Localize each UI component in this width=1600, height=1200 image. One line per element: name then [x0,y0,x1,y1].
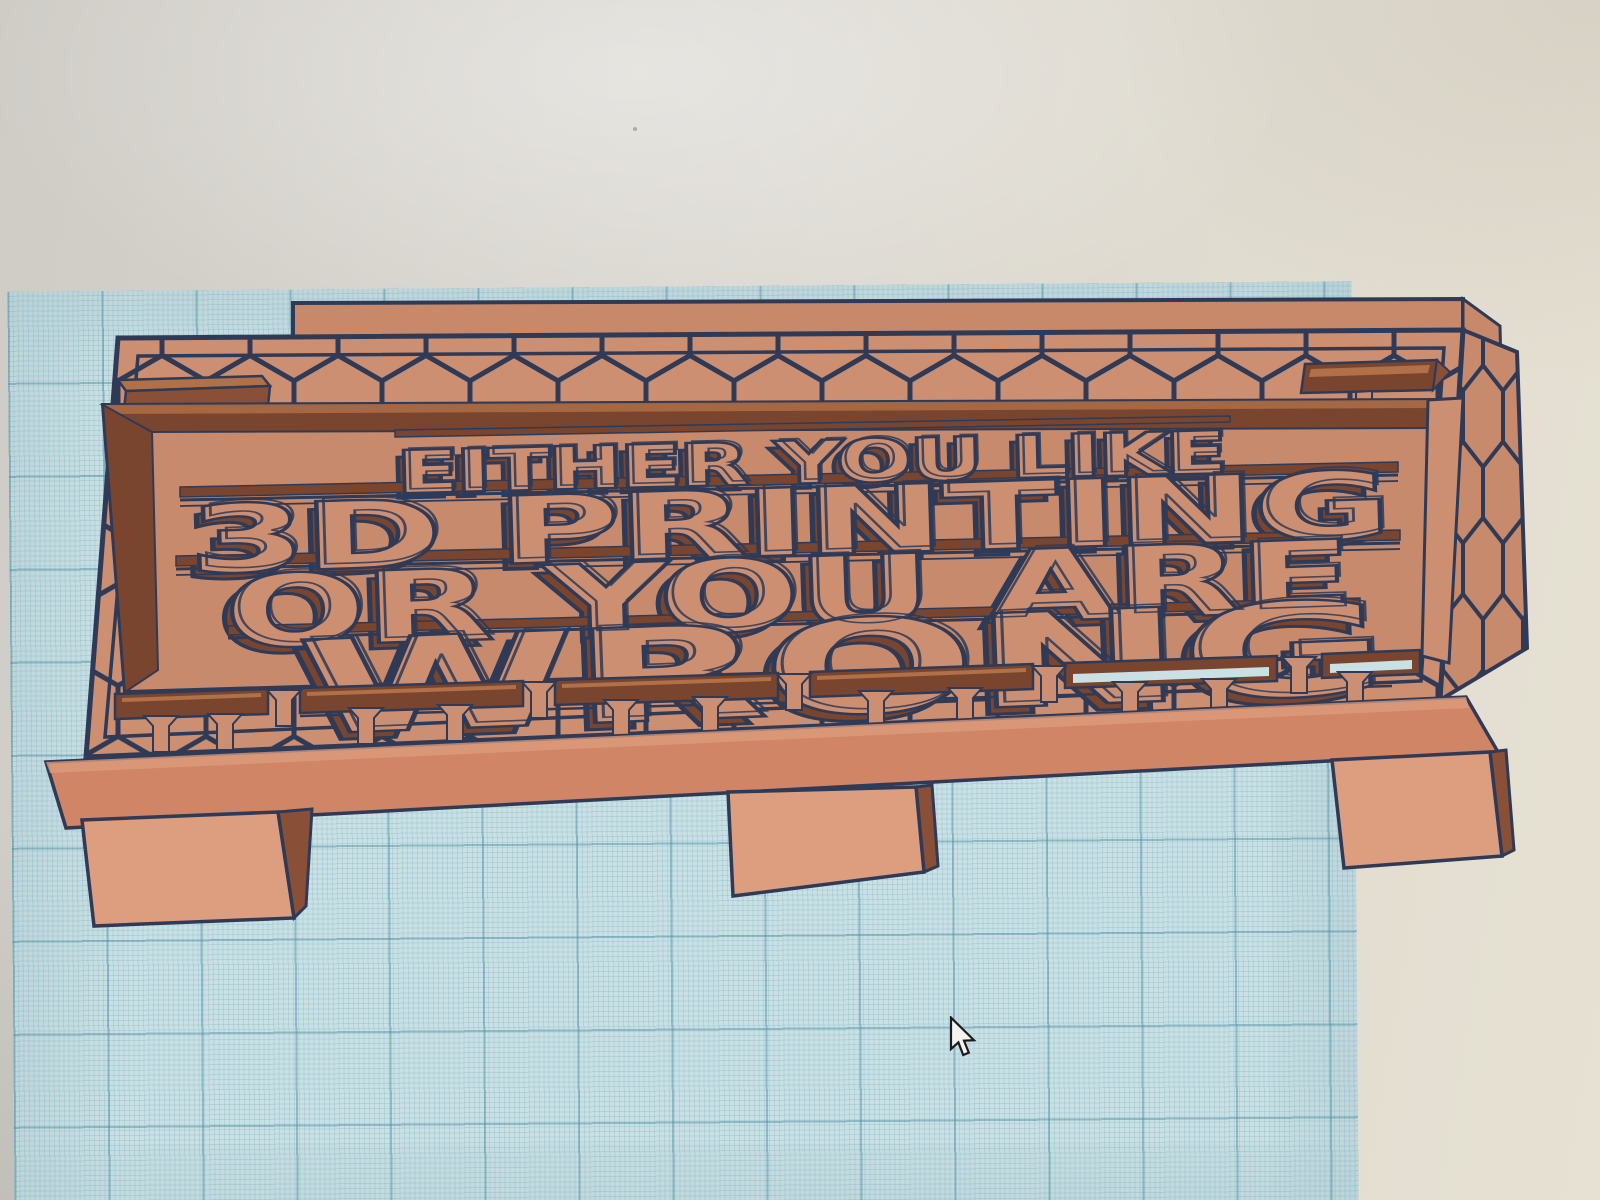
sign-leg-right [1332,750,1514,868]
bottom-slot [300,681,523,713]
sign-leg-left [82,809,312,926]
bottom-slot [1065,656,1277,688]
sign-leg-middle [728,785,938,896]
cursor-arrow-icon [948,1016,982,1058]
bottom-slot [115,689,268,719]
bottom-slot [555,673,778,705]
screen-photo: EITHER YOU LIKE 3D PRINTING OR YOU ARE W… [0,0,1600,1200]
sign-model-3d[interactable]: EITHER YOU LIKE 3D PRINTING OR YOU ARE W… [0,0,1600,1200]
